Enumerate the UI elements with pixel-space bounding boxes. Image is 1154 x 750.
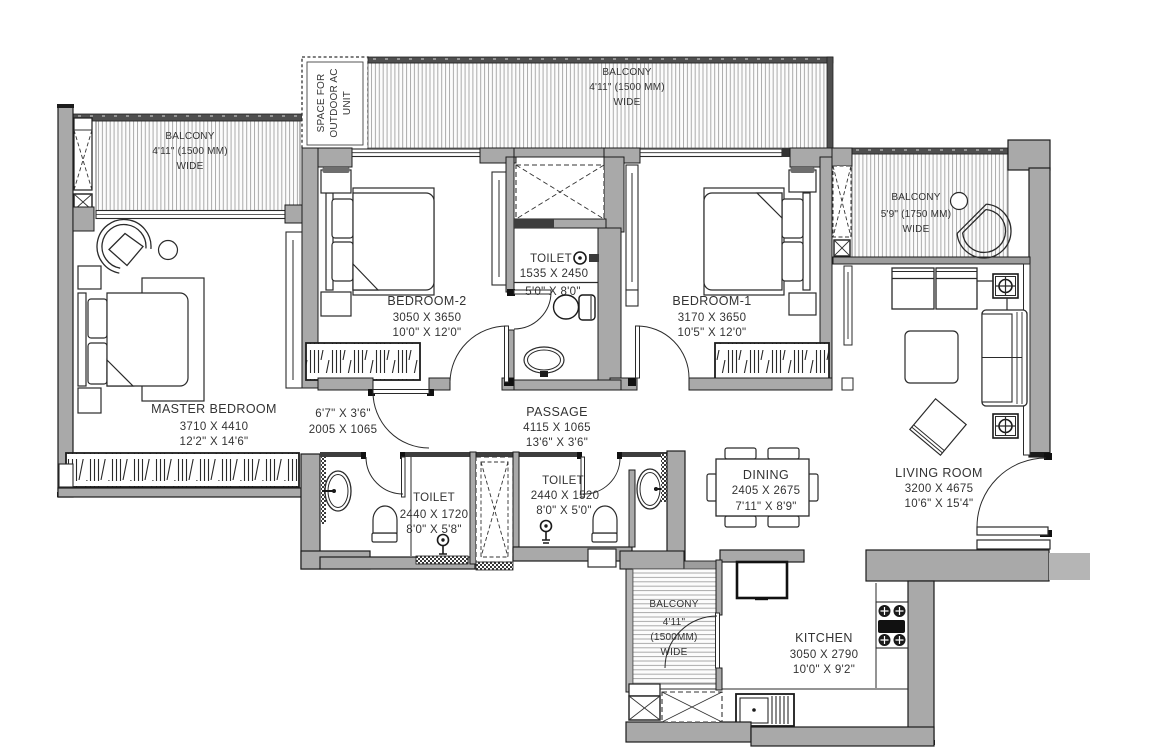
svg-text:10'0" X 12'0": 10'0" X 12'0" xyxy=(393,327,462,339)
svg-text:13'6" X 3'6": 13'6" X 3'6" xyxy=(526,437,588,449)
svg-text:BALCONY: BALCONY xyxy=(649,599,698,610)
svg-text:PASSAGE: PASSAGE xyxy=(526,405,588,419)
svg-text:10'6" X 15'4": 10'6" X 15'4" xyxy=(905,498,974,510)
svg-text:BEDROOM-1: BEDROOM-1 xyxy=(672,294,751,308)
svg-text:4115 X 1065: 4115 X 1065 xyxy=(523,422,591,434)
svg-text:TOILET: TOILET xyxy=(542,475,584,487)
svg-text:2440 X 1520: 2440 X 1520 xyxy=(531,490,600,502)
svg-text:8'0" X 5'8": 8'0" X 5'8" xyxy=(406,524,462,536)
svg-text:TOILET: TOILET xyxy=(530,253,572,265)
svg-text:4'11" (1500 MM): 4'11" (1500 MM) xyxy=(152,146,228,157)
svg-text:WIDE: WIDE xyxy=(177,161,204,172)
svg-text:3200 X 4675: 3200 X 4675 xyxy=(905,483,974,495)
svg-text:OUTDOOR AC: OUTDOOR AC xyxy=(329,68,340,137)
svg-text:3050 X 2790: 3050 X 2790 xyxy=(790,649,859,661)
svg-text:6'7" X 3'6": 6'7" X 3'6" xyxy=(315,408,371,420)
svg-text:3170 X 3650: 3170 X 3650 xyxy=(678,312,747,324)
svg-text:5'0" X 8'0": 5'0" X 8'0" xyxy=(525,286,581,298)
svg-text:2405 X 2675: 2405 X 2675 xyxy=(732,485,801,497)
svg-text:8'0" X 5'0": 8'0" X 5'0" xyxy=(536,505,592,517)
svg-text:5'9" (1750 MM): 5'9" (1750 MM) xyxy=(881,209,952,220)
svg-text:4'11": 4'11" xyxy=(663,617,686,628)
svg-text:WIDE: WIDE xyxy=(614,97,641,108)
svg-text:MASTER BEDROOM: MASTER BEDROOM xyxy=(151,402,277,416)
svg-text:BALCONY: BALCONY xyxy=(602,67,651,78)
svg-text:BALCONY: BALCONY xyxy=(891,192,940,203)
svg-text:2440 X 1720: 2440 X 1720 xyxy=(400,509,469,521)
svg-text:12'2" X 14'6": 12'2" X 14'6" xyxy=(180,436,249,448)
svg-text:WIDE: WIDE xyxy=(903,224,930,235)
svg-text:WIDE: WIDE xyxy=(661,647,688,658)
svg-text:KITCHEN: KITCHEN xyxy=(795,631,853,645)
svg-text:7'11" X 8'9": 7'11" X 8'9" xyxy=(735,501,796,513)
svg-text:UNIT: UNIT xyxy=(342,91,353,115)
svg-text:TOILET: TOILET xyxy=(413,492,455,504)
svg-text:(1500MM): (1500MM) xyxy=(650,632,697,643)
svg-text:4'11" (1500 MM): 4'11" (1500 MM) xyxy=(589,82,665,93)
svg-text:1535 X 2450: 1535 X 2450 xyxy=(520,268,589,280)
svg-text:10'5" X 12'0": 10'5" X 12'0" xyxy=(678,327,747,339)
svg-text:3710 X 4410: 3710 X 4410 xyxy=(180,421,249,433)
svg-text:BALCONY: BALCONY xyxy=(165,131,214,142)
svg-text:3050 X 3650: 3050 X 3650 xyxy=(393,312,462,324)
svg-text:2005 X 1065: 2005 X 1065 xyxy=(309,424,378,436)
svg-text:10'0" X 9'2": 10'0" X 9'2" xyxy=(793,664,855,676)
svg-text:BEDROOM-2: BEDROOM-2 xyxy=(387,294,466,308)
svg-text:DINING: DINING xyxy=(743,468,789,482)
svg-text:LIVING ROOM: LIVING ROOM xyxy=(895,466,983,480)
svg-text:SPACE FOR: SPACE FOR xyxy=(316,74,327,133)
